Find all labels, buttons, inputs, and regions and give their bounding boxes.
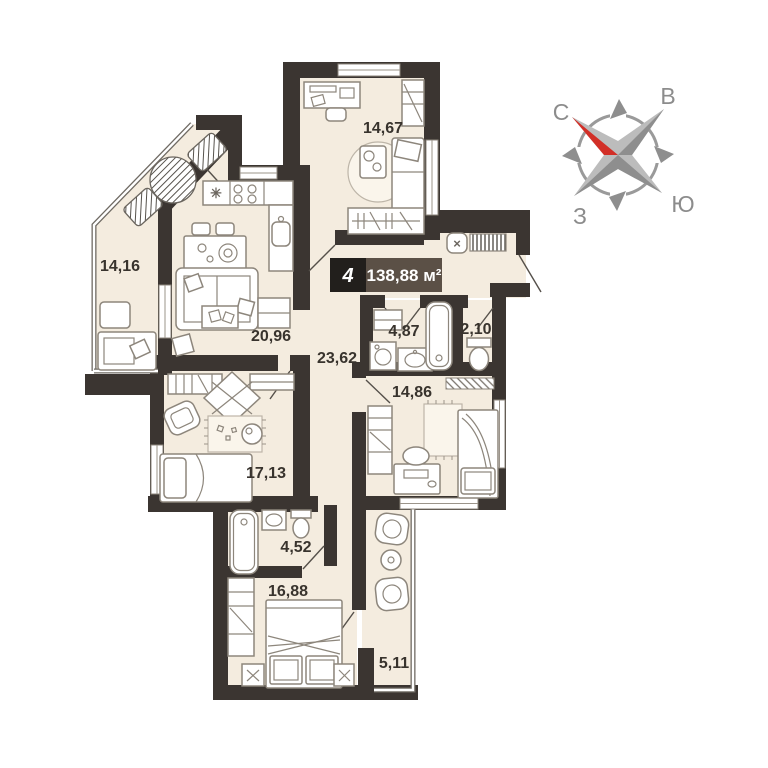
room-area-label-loggia-bottom: 5,11 — [379, 655, 409, 672]
kitchen-sink — [272, 222, 290, 246]
compass-label-south: Ю — [671, 191, 694, 217]
toilet — [291, 510, 311, 538]
bookshelf — [402, 80, 424, 126]
bathtub — [230, 510, 258, 574]
entry-elements: × — [447, 233, 506, 253]
loggia-side-table — [381, 550, 401, 570]
hob-icon: ✳ — [210, 185, 222, 201]
rooms-count: 4 — [341, 265, 353, 287]
total-area: 138,88 м² — [367, 266, 442, 285]
desk — [304, 82, 360, 108]
window — [240, 167, 277, 179]
nightstand — [334, 664, 354, 686]
bed — [458, 410, 498, 498]
desk-chair — [326, 108, 346, 121]
loggia-chair — [374, 576, 409, 611]
compass-label-east: В — [660, 83, 675, 109]
toilet — [467, 338, 491, 371]
wardrobe-study — [348, 208, 424, 234]
room-area-label-study: 14,67 — [363, 120, 403, 137]
room-area-label-bedroom-middle: 14,86 — [392, 384, 432, 401]
room-area-label-wc: 2,10 — [460, 321, 491, 338]
window — [400, 498, 478, 509]
coffee-table — [202, 306, 238, 328]
compass-label-north: С — [553, 99, 570, 125]
double-bed — [266, 600, 342, 688]
room-area-label-loggia-top: 14,16 — [100, 258, 140, 275]
wardrobe — [368, 406, 392, 474]
room-area-label-bathroom: 4,87 — [388, 323, 419, 340]
room-area-label-master: 16,88 — [268, 583, 308, 600]
pouf — [172, 334, 194, 356]
bathtub — [426, 302, 452, 370]
pillow — [164, 458, 186, 498]
nightstand — [242, 664, 264, 686]
room-area-label-hall: 23,62 — [317, 350, 357, 367]
door-mat-hatch — [470, 234, 506, 251]
side-table — [360, 146, 386, 178]
play-rug — [204, 416, 266, 452]
entrance-marker-glyph: × — [453, 236, 461, 251]
washing-machine — [370, 342, 396, 370]
window — [426, 140, 438, 215]
area-badge: 4 138,88 м² — [330, 258, 442, 292]
window — [338, 64, 400, 76]
kids-bed — [160, 454, 252, 502]
room-area-label-living: 20,96 — [251, 328, 291, 345]
toy — [242, 424, 262, 444]
room-area-label-children: 17,13 — [246, 465, 286, 482]
sink — [262, 510, 286, 530]
sofa-pillow — [236, 298, 254, 315]
loggia-chair — [374, 512, 410, 546]
wardrobe — [228, 578, 254, 656]
dining-table — [184, 236, 246, 270]
kitchen-counter-right — [269, 205, 293, 271]
room-area-label-bathroom-2: 4,52 — [280, 539, 311, 556]
floor-opening — [293, 310, 310, 355]
bed-rug — [424, 400, 462, 460]
desk-chair — [403, 447, 429, 465]
dresser — [250, 374, 294, 390]
shaft-hatch — [446, 378, 494, 389]
tv-stand — [258, 298, 290, 328]
compass-rose: С В З Ю — [553, 83, 695, 229]
floor-plan-page: ✳ — [0, 0, 768, 768]
floor-plan-drawing: ✳ — [0, 0, 768, 768]
compass-label-west: З — [573, 203, 587, 229]
window — [159, 285, 171, 338]
